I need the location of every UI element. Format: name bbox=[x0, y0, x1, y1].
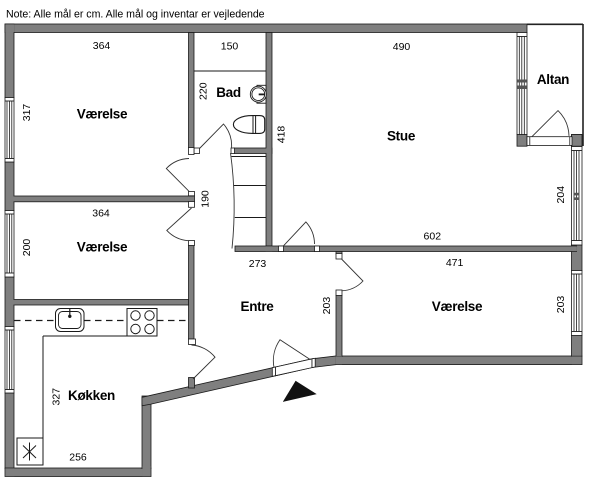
svg-text:203: 203 bbox=[321, 297, 333, 315]
svg-text:190: 190 bbox=[199, 190, 211, 208]
svg-text:Køkken: Køkken bbox=[68, 388, 115, 403]
svg-text:364: 364 bbox=[92, 208, 110, 220]
svg-text:200: 200 bbox=[21, 239, 33, 257]
svg-text:220: 220 bbox=[198, 82, 210, 100]
svg-text:256: 256 bbox=[69, 452, 87, 464]
svg-text:Bad: Bad bbox=[216, 85, 241, 100]
svg-text:602: 602 bbox=[424, 231, 442, 243]
svg-text:471: 471 bbox=[446, 257, 464, 269]
svg-text:317: 317 bbox=[21, 104, 33, 122]
svg-text:Entre: Entre bbox=[240, 299, 274, 314]
svg-text:273: 273 bbox=[249, 258, 267, 270]
svg-text:Værelse: Værelse bbox=[77, 240, 128, 255]
svg-text:418: 418 bbox=[276, 126, 288, 144]
svg-text:Note: Alle mål er cm. Alle mål: Note: Alle mål er cm. Alle mål og invent… bbox=[6, 9, 265, 21]
svg-text:Værelse: Værelse bbox=[432, 299, 483, 314]
svg-text:Altan: Altan bbox=[537, 72, 569, 87]
svg-text:364: 364 bbox=[93, 40, 111, 52]
svg-text:327: 327 bbox=[51, 388, 63, 406]
svg-text:203: 203 bbox=[555, 296, 567, 314]
svg-text:150: 150 bbox=[221, 41, 239, 53]
svg-text:Stue: Stue bbox=[387, 129, 416, 144]
svg-text:490: 490 bbox=[393, 41, 411, 53]
svg-text:204: 204 bbox=[555, 186, 567, 204]
svg-text:Værelse: Værelse bbox=[77, 107, 128, 122]
